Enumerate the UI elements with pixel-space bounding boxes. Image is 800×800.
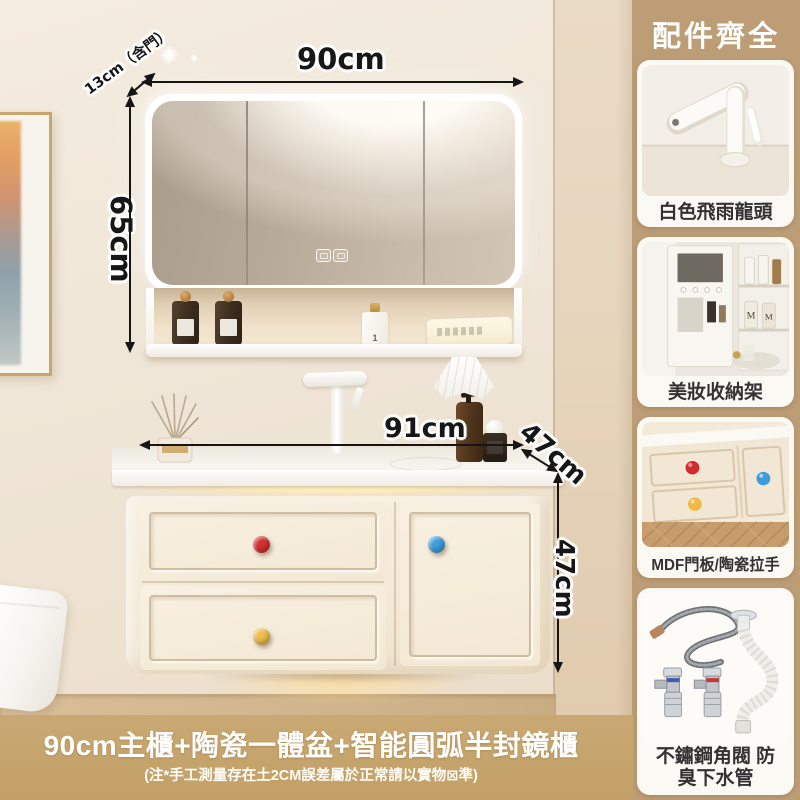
accessory-label: 不鏽鋼角閥 防 臭下水管 [637,746,794,790]
measurement-note: (注*手工測量存在土2CM誤差屬於正常請以實物⊠準) [0,764,622,785]
white-faucet-photo [642,65,789,196]
open-shelf [146,288,522,406]
counter-width-label: 91cm [384,413,466,444]
accessory-card-makeup-rack: M M 美妝收納架 [637,237,794,407]
artwork-image [0,121,21,365]
cabinet-door [400,503,540,666]
cabinet-divider [394,502,396,666]
stainless-valve-drain-pipe-photo [642,593,789,745]
accessory-label: MDF門板/陶瓷拉手 [641,557,790,575]
product-title: 90cm主櫃+陶瓷一體盆+智能圓弧半封鏡櫃 [0,724,622,764]
product-image: 90cm 13cm（含門） 65cm 91cm 47cm 47cm 配件齊全 [0,0,800,800]
tissue-box [427,317,513,347]
countertop-front-edge [112,470,564,486]
smart-mirror-cabinet [145,94,522,292]
accessory-label: 美妝收納架 [637,382,794,404]
hanging-tissue [434,357,494,399]
svg-text:M: M [747,311,756,322]
mirror-height-label: 65cm [104,195,138,283]
perfume-bottle [362,312,388,345]
defog-touch-icon [316,249,331,262]
under-counter-led [128,486,554,498]
svg-text:M: M [765,312,773,322]
mirror-glass [152,101,515,285]
drawer-gap [142,581,384,583]
cosmetic-jar [483,433,507,462]
ceramic-knob-yellow [253,628,270,645]
sparkle-dot [190,54,198,62]
accessory-card-faucet: 白色飛雨龍頭 [637,60,794,227]
mirror-width-arrow [143,81,522,83]
vanity-cabinet [126,496,550,674]
bathroom-scene: 90cm 13cm（含門） 65cm 91cm 47cm 47cm [0,0,640,720]
accessory-card-door-handles: MDF門板/陶瓷拉手 [637,417,794,578]
mirror-width-label: 90cm [297,42,385,76]
integrated-basin [390,457,462,471]
ceramic-knob-blue [428,536,445,553]
shelf-side [514,288,522,350]
wall-artwork [0,112,52,376]
accessories-title: 配件齊全 [632,13,800,55]
mirror-door-seam [246,101,248,285]
amber-pump-bottle [215,301,242,345]
mirror-height-arrow [129,98,131,351]
accessory-label: 白色飛雨龍頭 [637,202,794,224]
shelf-board [146,344,522,357]
cabinet-height-label: 47cm [549,539,579,618]
light-touch-icon [333,249,348,262]
accessory-card-drain-kit: 不鏽鋼角閥 防 臭下水管 [637,588,794,795]
shelf-side [146,288,154,350]
accessories-panel: 配件齊全 白色飛雨龍頭 [632,0,800,800]
mirror-door-seam [423,101,425,285]
counter-width-arrow [141,444,522,446]
ceramic-knob-red [253,536,270,553]
mdf-door-ceramic-knobs-photo [642,422,789,547]
amber-pump-bottle [172,301,199,345]
makeup-storage-rack-photo: M M [642,242,789,376]
product-title-banner: 90cm主櫃+陶瓷一體盆+智能圓弧半封鏡櫃 (注*手工測量存在土2CM誤差屬於正… [0,715,633,800]
